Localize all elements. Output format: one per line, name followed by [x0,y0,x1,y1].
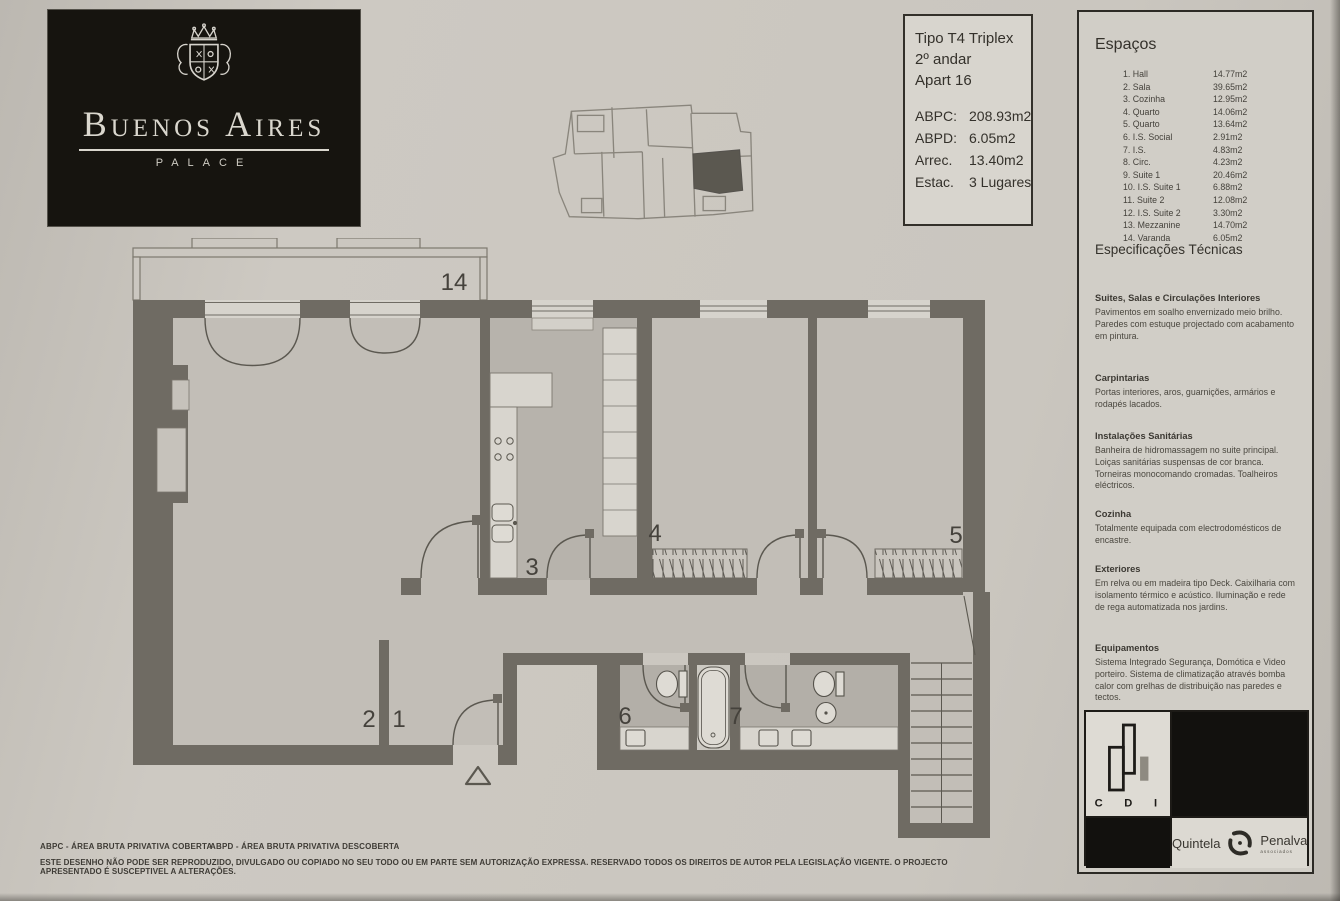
area-label: ABPC: [915,105,969,127]
room-label-hall: 1 [392,706,405,733]
area-value: 208.93m2 [969,105,1031,127]
floor-plan-drawing: 14 2 1 3 4 5 6 7 [118,238,998,838]
washbasin-symbol [626,730,645,746]
space-row: 5. Quarto13.64m2 [1123,118,1303,131]
spec-section: Cozinha Totalmente equipada com electrod… [1095,509,1295,547]
space-area: 14.06m2 [1213,106,1247,119]
info-panel: Espaços 1. Hall14.77m2 2. Sala39.65m2 3.… [1077,10,1314,874]
cdi-letter: D [1124,798,1132,810]
space-area: 6.88m2 [1213,181,1242,194]
space-row: 2. Sala39.65m2 [1123,81,1303,94]
space-area: 3.30m2 [1213,207,1242,220]
space-row: 8. Circ.4.23m2 [1123,156,1303,169]
toilet-symbol [657,671,678,697]
spec-heading: Cozinha [1095,509,1295,519]
black-panel [1086,818,1170,868]
area-value: 13.40m2 [969,149,1023,171]
space-row: 9. Suite 120.46m2 [1123,169,1303,182]
space-row: 3. Cozinha12.95m2 [1123,93,1303,106]
window-sill [532,318,593,330]
spec-body: Em relva ou em madeira tipo Deck. Caixil… [1095,578,1295,613]
space-row: 1. Hall14.77m2 [1123,68,1303,81]
space-row: 4. Quarto14.06m2 [1123,106,1303,119]
brand-rule [79,149,329,151]
spec-section: Equipamentos Sistema Integrado Segurança… [1095,643,1295,704]
space-name: 7. I.S. [1123,144,1213,157]
room-label-varanda: 14 [441,269,468,296]
area-row: ABPD:6.05m2 [915,127,1021,149]
counter [490,407,517,578]
counter [490,373,552,407]
quintela-penalva-logo: Quintela Penalva associados [1172,818,1307,868]
partner-word: Penalva [1260,833,1307,848]
space-name: 4. Quarto [1123,106,1213,119]
space-area: 12.95m2 [1213,93,1247,106]
toilet-tank [679,671,687,697]
spec-heading: Equipamentos [1095,643,1295,653]
spaces-list: 1. Hall14.77m2 2. Sala39.65m2 3. Cozinha… [1123,68,1303,244]
area-row: ABPC:208.93m2 [915,105,1021,127]
room-label-is-social: 6 [618,703,631,730]
area-row: Estac.3 Lugares [915,171,1021,193]
spec-body: Pavimentos em soalho envernizado meio br… [1095,307,1295,342]
paper-edge-shadow [0,893,1340,901]
bathtub-symbol [698,667,729,748]
washbasin-symbol [759,730,778,746]
toilet-symbol [814,672,835,697]
spec-heading: Instalações Sanitárias [1095,431,1295,441]
room-label-cozinha: 3 [525,554,538,581]
brand-name: Buenos Aires [83,106,326,142]
legend-abpc: ABPC - ÁREA BRUTA PRIVATIVA COBERTA [40,842,212,851]
area-value: 3 Lugares [969,171,1031,193]
area-label: Arrec. [915,149,969,171]
space-row: 7. I.S.4.83m2 [1123,144,1303,157]
paper-edge-shadow [1330,0,1340,901]
balcony-varanda [133,238,487,300]
area-row: Arrec.13.40m2 [915,149,1021,171]
unit-number: Apart 16 [915,70,1021,91]
area-value: 6.05m2 [969,127,1016,149]
spec-section: Suites, Salas e Circulações Interiores P… [1095,293,1295,342]
space-name: 2. Sala [1123,81,1213,94]
spec-body: Sistema Integrado Segurança, Domótica e … [1095,657,1295,704]
space-area: 13.64m2 [1213,118,1247,131]
space-name: 8. Circ. [1123,156,1213,169]
space-area: 4.23m2 [1213,156,1242,169]
space-row: 6. I.S. Social2.91m2 [1123,131,1303,144]
crest-icon [161,20,247,102]
space-area: 4.83m2 [1213,144,1242,157]
space-name: 6. I.S. Social [1123,131,1213,144]
brand-logo-block: Buenos Aires Palace [48,10,360,226]
spec-section: Instalações Sanitárias Banheira de hidro… [1095,431,1295,492]
spec-heading: Carpintarias [1095,373,1295,383]
area-label: ABPD: [915,127,969,149]
space-name: 12. I.S. Suite 2 [1123,207,1213,220]
unit-floor: 2º andar [915,49,1021,70]
spec-heading: Exteriores [1095,564,1295,574]
building-key-plan [541,97,769,231]
room-label-is7: 7 [729,703,742,730]
room-label-quarto5: 5 [949,522,962,549]
space-name: 11. Suite 2 [1123,194,1213,207]
swirl-icon [1227,828,1253,858]
space-row: 10. I.S. Suite 16.88m2 [1123,181,1303,194]
partner-logo-grid: C D I Quintela Penalva associ [1084,710,1309,866]
cdi-logo: C D I [1086,712,1170,816]
brand-subtitle: Palace [156,157,253,169]
room-label-quarto4: 4 [648,520,661,547]
specs-title: Especificações Técnicas [1095,242,1243,257]
spec-section: Carpintarias Portas interiores, aros, gu… [1095,373,1295,411]
copyright-disclaimer: ESTE DESENHO NÃO PODE SER REPRODUZIDO, D… [40,858,950,876]
room-label-sala: 2 [362,706,375,733]
space-area: 20.46m2 [1213,169,1247,182]
legend-abpd: ABPD - ÁREA BRUTA PRIVATIVA DESCOBERTA [210,842,400,851]
space-area: 12.08m2 [1213,194,1247,207]
space-row: 13. Mezzanine14.70m2 [1123,219,1303,232]
cdi-letter: C [1095,798,1103,810]
space-name: 5. Quarto [1123,118,1213,131]
spec-heading: Suites, Salas e Circulações Interiores [1095,293,1295,303]
spaces-title: Espaços [1095,36,1156,54]
black-panel [1172,712,1307,816]
entrance-marker-triangle [466,767,490,784]
space-area: 14.70m2 [1213,219,1247,232]
spec-section: Exteriores Em relva ou em madeira tipo D… [1095,564,1295,613]
cdi-letter: I [1154,798,1157,810]
partner-word: Quintela [1172,836,1220,851]
space-name: 10. I.S. Suite 1 [1123,181,1213,194]
area-rows: ABPC:208.93m2 ABPD:6.05m2 Arrec.13.40m2 … [915,105,1021,193]
partner-tagline: associados [1260,849,1293,854]
title-block: Tipo T4 Triplex 2º andar Apart 16 ABPC:2… [903,14,1033,226]
spec-body: Portas interiores, aros, guarnições, arm… [1095,387,1295,411]
space-name: 13. Mezzanine [1123,219,1213,232]
washbasin-symbol [792,730,811,746]
space-row: 12. I.S. Suite 23.30m2 [1123,207,1303,220]
toilet-tank [836,672,844,696]
unit-type: Tipo T4 Triplex [915,28,1021,49]
apartment-location-highlight [693,150,743,194]
spec-body: Totalmente equipada com electrodoméstico… [1095,523,1295,547]
area-label: Estac. [915,171,969,193]
spec-body: Banheira de hidromassagem no suite princ… [1095,445,1295,492]
space-area: 2.91m2 [1213,131,1242,144]
space-area: 39.65m2 [1213,81,1247,94]
space-name: 9. Suite 1 [1123,169,1213,182]
space-row: 11. Suite 212.08m2 [1123,194,1303,207]
space-area: 14.77m2 [1213,68,1247,81]
space-name: 3. Cozinha [1123,93,1213,106]
space-name: 1. Hall [1123,68,1213,81]
scanned-floor-plan-sheet: Buenos Aires Palace Tipo T4 Triplex 2º a… [0,0,1340,901]
